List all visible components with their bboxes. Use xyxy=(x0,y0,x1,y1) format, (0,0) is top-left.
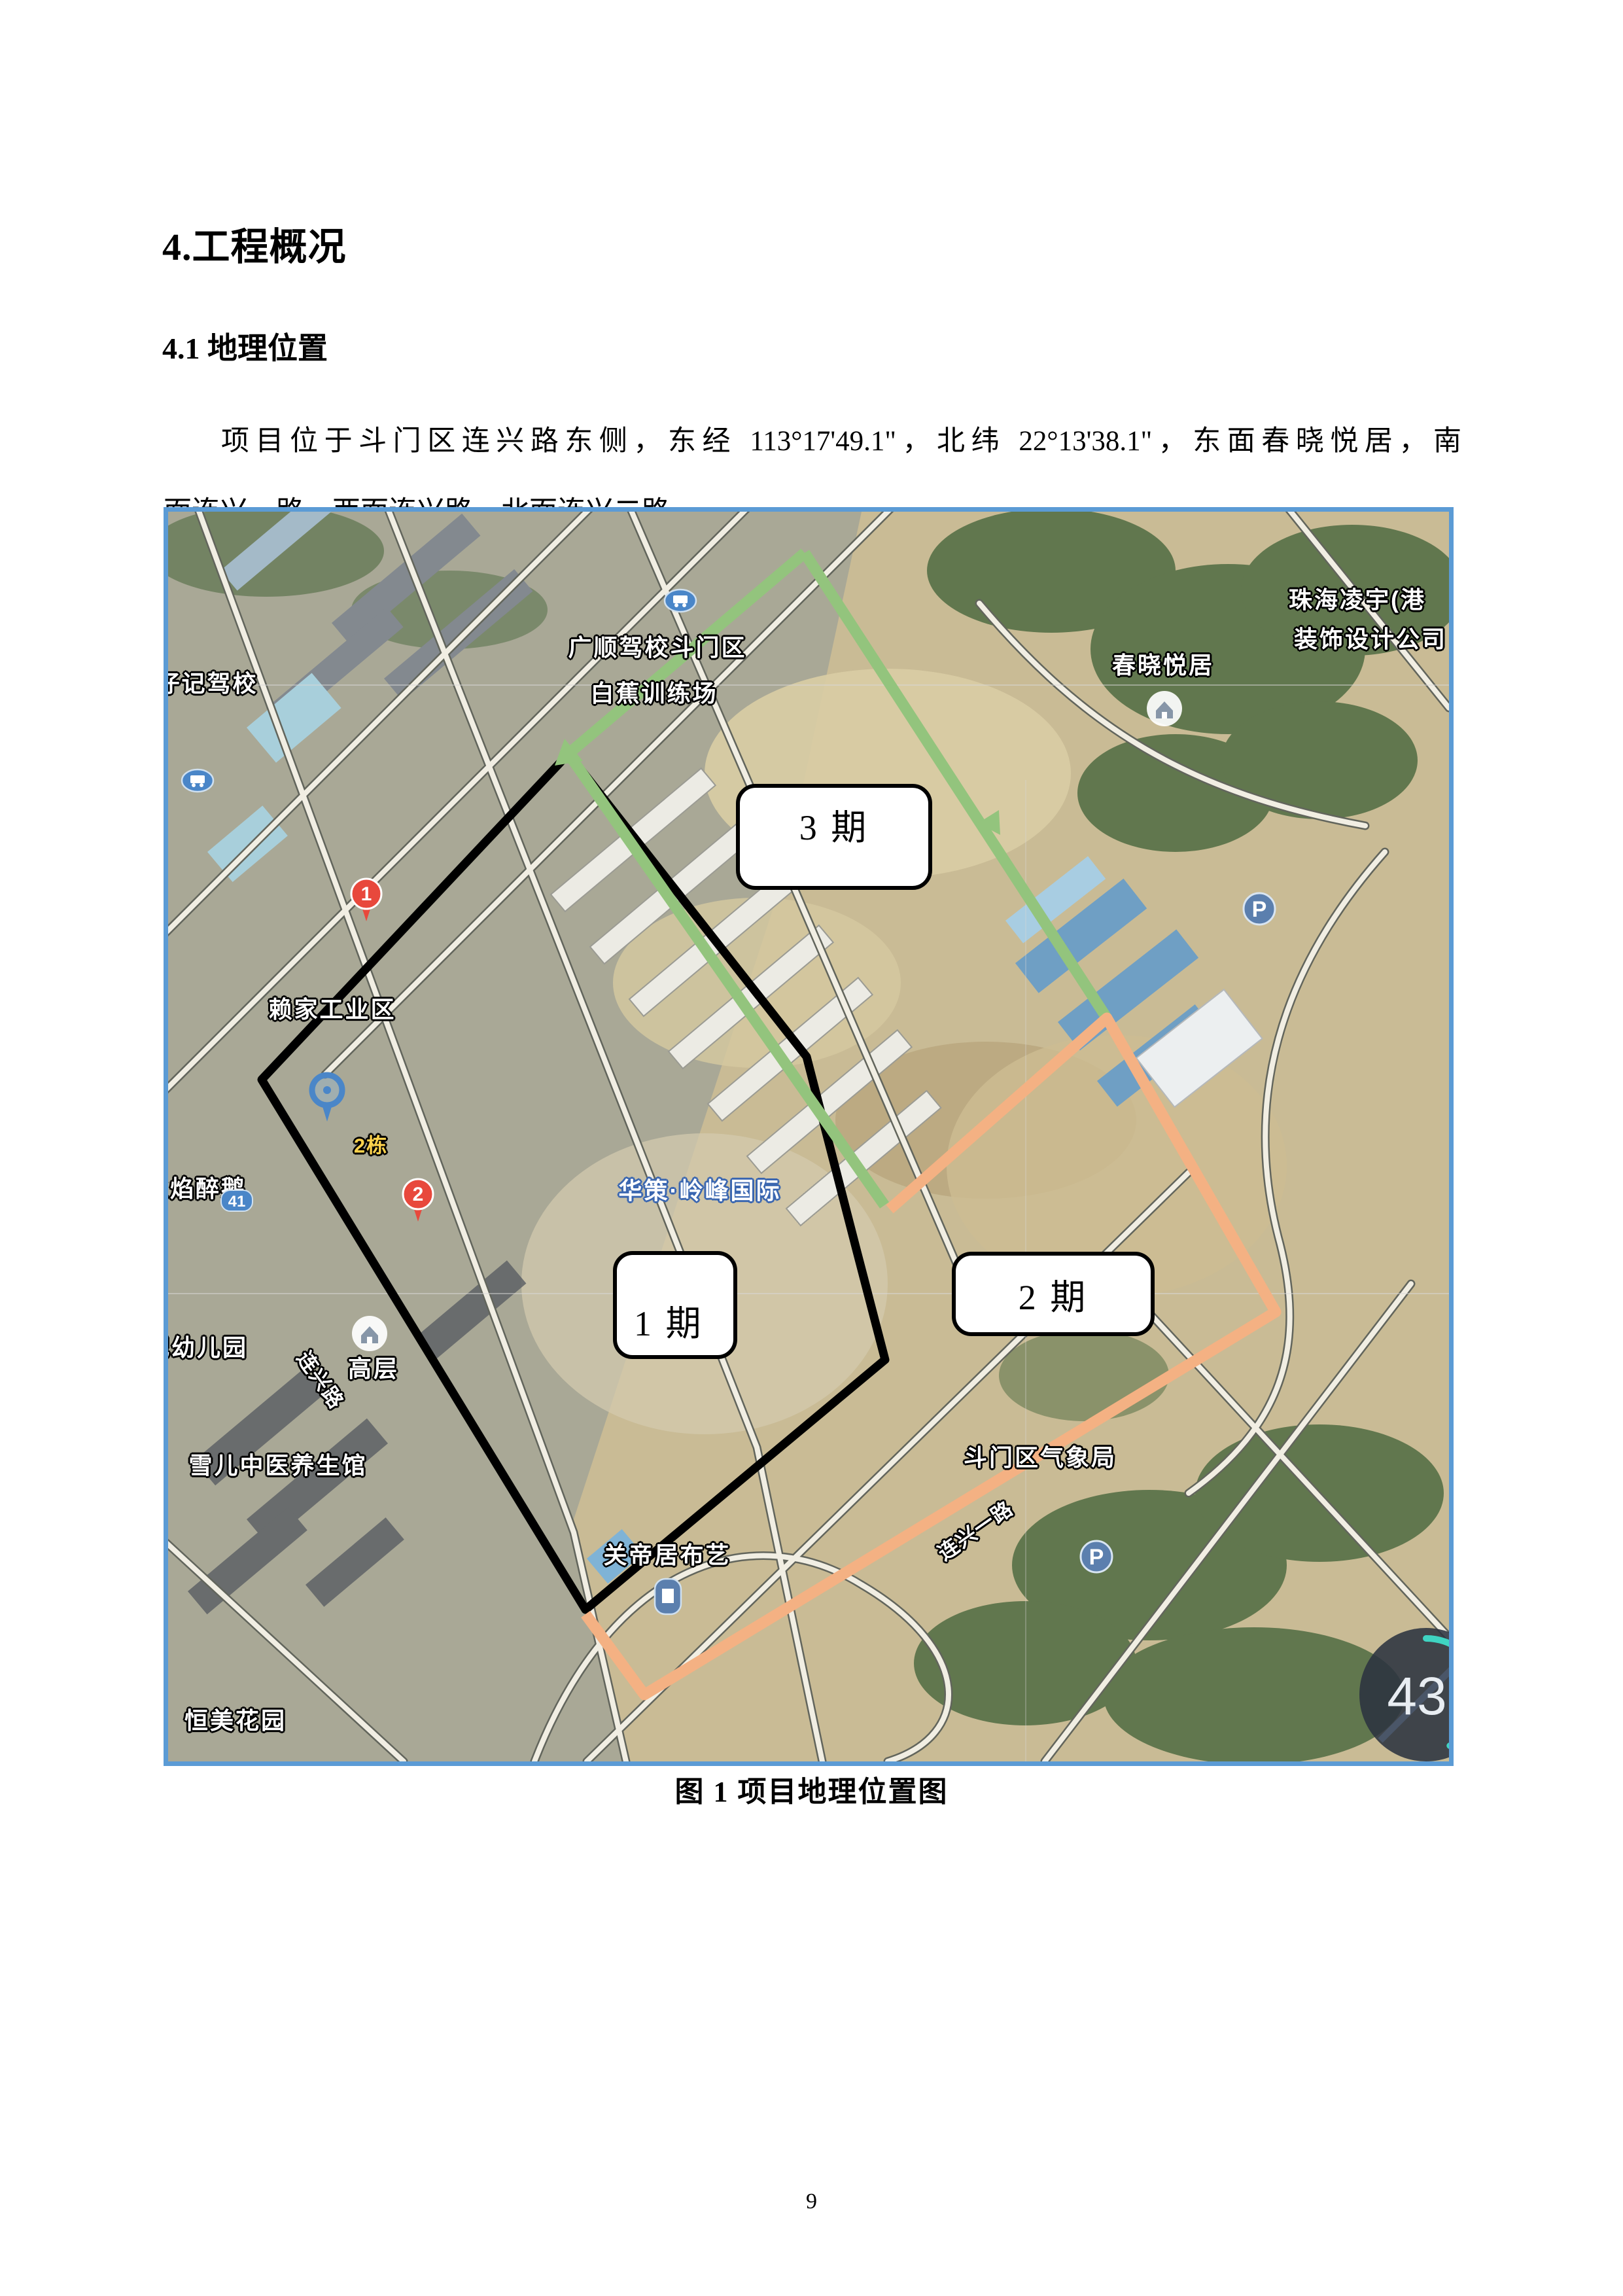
paragraph-line-1: 项目位于斗门区连兴路东侧，东经 113°17'49.1"，北纬 22°13'38… xyxy=(164,424,1461,459)
map-pin-2-icon: 2 xyxy=(400,1176,436,1226)
label-gaoceng: 高层 xyxy=(348,1356,399,1382)
location-ring-icon xyxy=(306,1069,348,1129)
document-page: 4.工程概况 4.1 地理位置 项目位于斗门区连兴路东侧，东经 113°17'4… xyxy=(0,0,1623,2296)
parking-icon: P xyxy=(1078,1538,1115,1575)
shop-badge-icon xyxy=(653,1577,683,1616)
label-xueer-clinic: 雪儿中医养生馆 xyxy=(188,1453,367,1479)
label-fazaiji: 发仔记驾校 xyxy=(164,671,258,697)
svg-text:P: P xyxy=(1089,1545,1104,1570)
phase-3-label-box: 3 期 xyxy=(736,784,932,890)
label-building-2: 2栋 xyxy=(354,1135,388,1158)
label-meteorological-bureau: 斗门区气象局 xyxy=(964,1445,1117,1471)
route-41-badge: 41 xyxy=(220,1189,254,1212)
label-hengmei-garden: 恒美花园 xyxy=(184,1708,287,1734)
svg-text:41: 41 xyxy=(228,1193,246,1210)
phase-3-label: 3 期 xyxy=(799,798,869,850)
parking-icon: P xyxy=(1241,891,1278,927)
label-guangshun-line2: 白蕉训练场 xyxy=(590,680,718,707)
phase-1-label: 1 期 xyxy=(634,1294,704,1346)
phase-1-label-box: 1 期 xyxy=(613,1251,737,1359)
phase-2-label: 2 期 xyxy=(1019,1268,1089,1320)
label-guangshun-line1: 广顺驾校斗门区 xyxy=(568,635,746,661)
svg-text:2: 2 xyxy=(413,1184,424,1205)
label-zhuhai-lingyu-line2: 装饰设计公司 xyxy=(1294,626,1447,652)
subsection-heading: 4.1 地理位置 xyxy=(162,325,328,368)
svg-text:P: P xyxy=(1252,897,1267,922)
section-heading: 4.工程概况 xyxy=(162,216,347,271)
figure-caption: 图 1 项目地理位置图 xyxy=(0,1768,1623,1810)
label-guandi-fabric: 关帝居布艺 xyxy=(603,1542,731,1568)
bus-stop-icon xyxy=(179,766,216,795)
svg-text:1: 1 xyxy=(361,883,372,905)
gauge-value: 43 xyxy=(1387,1667,1446,1726)
label-huace-lingfeng: 华策·岭峰国际 xyxy=(619,1178,782,1204)
map-pin-1-icon: 1 xyxy=(348,875,385,925)
phase-2-label-box: 2 期 xyxy=(952,1252,1155,1336)
label-youeryuan: 纪幼儿园 xyxy=(164,1335,248,1361)
location-map-figure: 43 % 珠海凌宇(港 装饰设计公司 春晓悦居 广顺驾校斗门区 白蕉训练场 发仔… xyxy=(164,507,1454,1766)
house-icon xyxy=(350,1314,389,1353)
label-laijia-industrial: 赖家工业区 xyxy=(268,997,396,1023)
page-number: 9 xyxy=(0,2189,1623,2214)
label-chunxiao-yueju: 春晓悦居 xyxy=(1112,652,1214,679)
bus-stop-icon xyxy=(662,586,699,615)
house-icon xyxy=(1145,689,1184,728)
label-zhuhai-lingyu-line1: 珠海凌宇(港 xyxy=(1289,587,1426,613)
